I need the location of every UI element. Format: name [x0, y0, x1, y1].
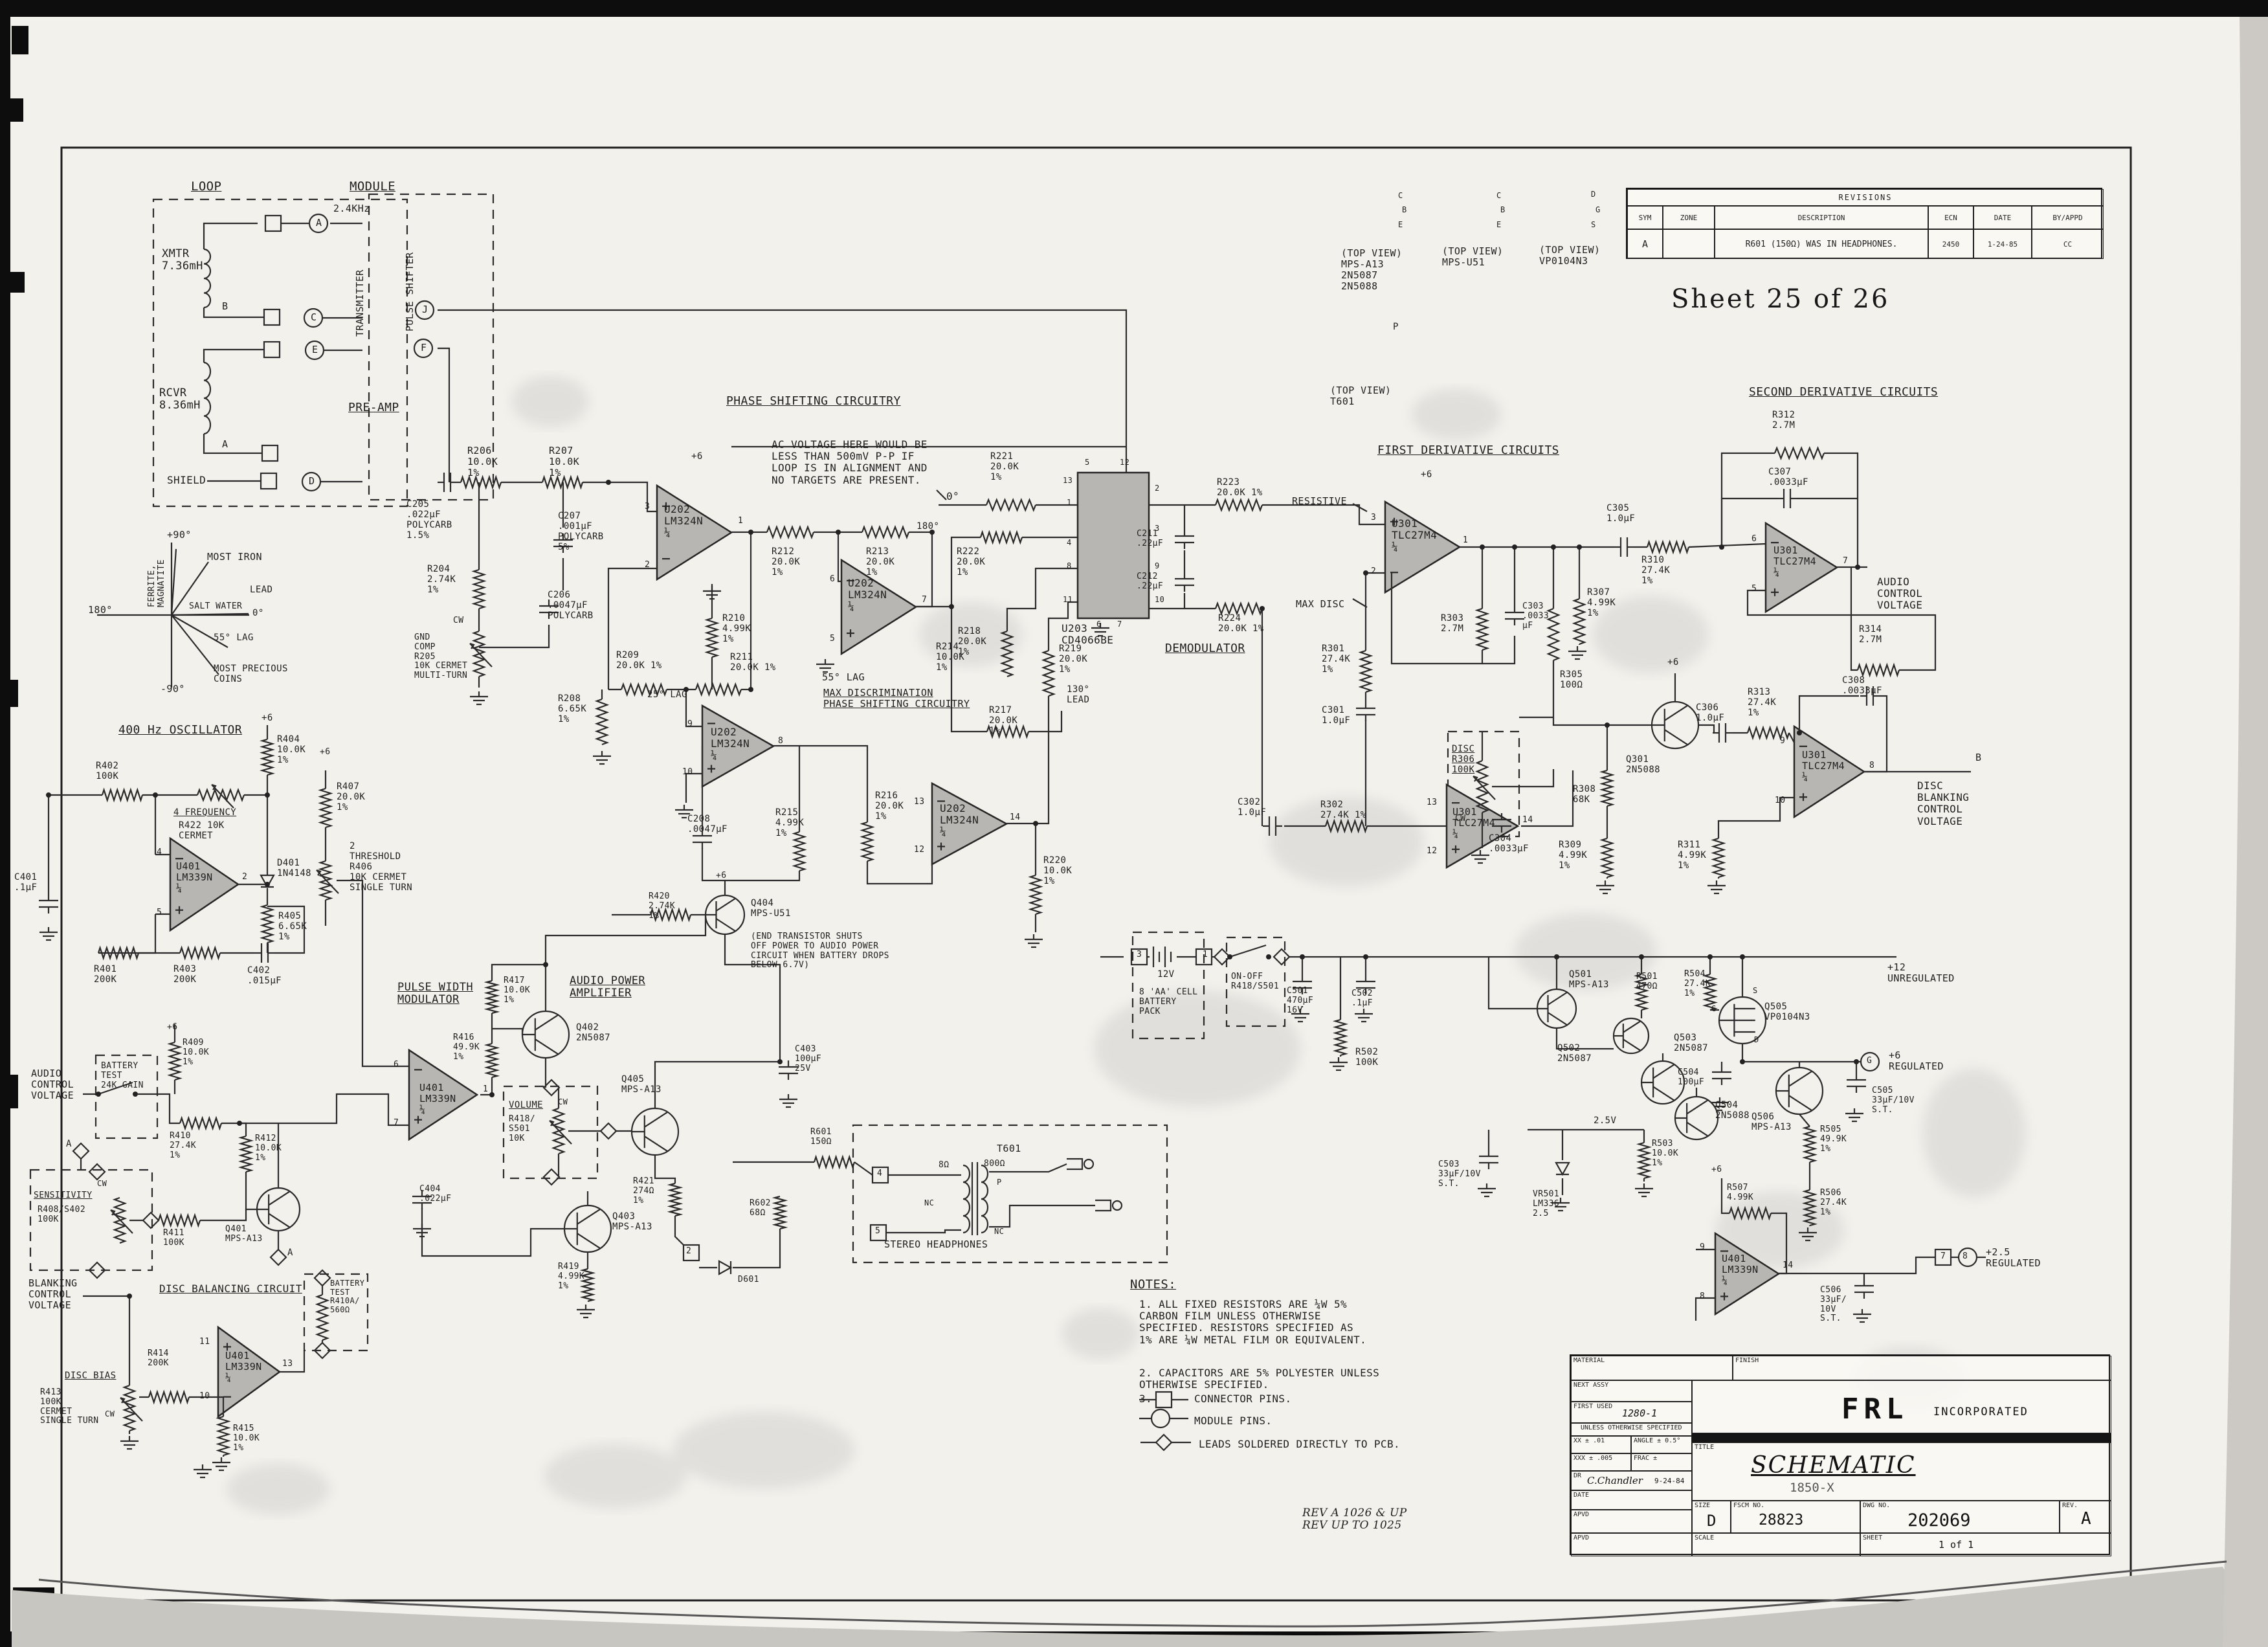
fscm-value: 28823: [1759, 1512, 1803, 1529]
rev-value: A: [2081, 1509, 2091, 1529]
first-used-value: 1280-1: [1622, 1407, 1657, 1419]
label-r310: R310 27.4K 1%: [1641, 555, 1670, 587]
label-r601: R601 150Ω: [810, 1128, 832, 1147]
label-c302: C302 1.0µF: [1238, 798, 1266, 818]
tol-xxx: XXX ± .005: [1573, 1455, 1612, 1462]
label-r221: R221 20.0K 1%: [990, 452, 1019, 483]
label-r502: R502 100K: [1355, 1048, 1378, 1068]
label-top-view: (TOP VIEW) VP0104N3: [1539, 245, 1600, 267]
label-u401: U401 LM339N ¼: [176, 861, 213, 894]
label-1: 1: [483, 1085, 488, 1095]
label-r308: R308 68K: [1573, 785, 1595, 805]
label-r219: R219 20.0K 1%: [1059, 644, 1087, 675]
label-12: 12: [914, 846, 924, 855]
rev-row-ecn: 2450: [1928, 229, 1973, 259]
label-7: 7: [1843, 557, 1848, 566]
label-r208: R208 6.65K 1%: [558, 694, 586, 725]
rev-row-zone: [1663, 229, 1715, 259]
label-r209: R209 20.0K 1%: [616, 651, 662, 671]
label-r505: R505 49.9K 1%: [1820, 1125, 1847, 1154]
label-r407: R407 20.0K 1%: [337, 782, 365, 813]
label-d601: D601: [738, 1275, 759, 1285]
label-r507: R507 4.99K: [1727, 1183, 1753, 1203]
label-1: 1: [1463, 536, 1468, 546]
label-r408-s402: R408/S402 100K: [38, 1205, 85, 1225]
material-label: MATERIAL: [1573, 1357, 1605, 1364]
label-r414: R414 200K: [148, 1349, 169, 1369]
apvd-label: APVD: [1573, 1511, 1589, 1518]
label-r416: R416 49.9K 1%: [453, 1033, 480, 1062]
label-cw: CW: [105, 1410, 115, 1419]
label-r210: R210 4.99K 1%: [722, 614, 751, 645]
label-14: 14: [1783, 1261, 1793, 1271]
label-r206: R206 10.0K 1%: [467, 445, 498, 478]
label-r419: R419 4.99K 1%: [558, 1262, 584, 1291]
label-c503: C503 33µF/10V S.T.: [1438, 1160, 1481, 1189]
label-b: B: [222, 301, 228, 312]
label-14: 14: [1010, 813, 1020, 823]
label-c: C: [311, 312, 317, 323]
label-10: 10: [682, 768, 693, 778]
label-rcvr: RCVR 8.36mH: [159, 387, 201, 412]
label-pulse-width: PULSE WIDTH MODULATOR: [397, 981, 473, 1007]
label-7: 7: [394, 1119, 399, 1128]
label-90: -90°: [161, 684, 185, 695]
label-g: G: [1711, 1005, 1717, 1014]
label-d401: D401 1N4148: [277, 858, 311, 879]
rev-row-by: CC: [2032, 229, 2104, 259]
label-volume: VOLUME: [509, 1101, 543, 1111]
label-8: 8: [778, 737, 783, 746]
rev-col-sym: SYM: [1627, 206, 1663, 229]
label-b: B: [1500, 206, 1506, 215]
title-block: MATERIAL FINISH NEXT ASSY FIRST USED 128…: [1570, 1354, 2110, 1555]
label-u301: U301 TLC27M4 ¼: [1773, 545, 1816, 578]
label-audio-power: AUDIO POWER AMPLIFIER: [570, 975, 645, 1000]
label-8: 8: [1869, 761, 1874, 771]
label-r417: R417 10.0K 1%: [504, 976, 530, 1005]
tolerance-header: UNLESS OTHERWISE SPECIFIED: [1581, 1424, 1682, 1431]
label-q504: Q504 2N5088: [1715, 1101, 1750, 1121]
label-r410: R410 27.4K 1%: [170, 1132, 196, 1160]
label-6: 6: [830, 575, 835, 585]
rev-label: REV.: [2062, 1502, 2078, 1509]
label-sensitivity: SENSITIVITY: [34, 1191, 93, 1201]
label-most-iron: MOST IRON: [207, 552, 262, 563]
label-lead: LEAD: [250, 585, 272, 596]
label-connector-pins: CONNECTOR PINS.: [1194, 1393, 1292, 1405]
drawn-label: DR: [1573, 1472, 1581, 1479]
label-r404: R404 10.0K 1%: [277, 735, 306, 766]
label-c502: C502 .1µF: [1351, 989, 1373, 1009]
label-55-lag: 55° LAG: [822, 672, 865, 683]
label-7: 7: [922, 596, 927, 605]
rev-row-sym: A: [1627, 229, 1663, 259]
label-first-derivative-circuits: FIRST DERIVATIVE CIRCUITS: [1377, 444, 1559, 458]
label-r223: R223 20.0K 1%: [1217, 478, 1263, 499]
label-r207: R207 10.0K 1%: [549, 445, 579, 478]
label-r420: R420 2.74K 1%: [649, 892, 675, 921]
label-g: G: [1867, 1057, 1872, 1066]
label-3: 3: [1137, 950, 1142, 960]
rev-col-ecn: ECN: [1928, 206, 1973, 229]
label-5: 5: [1085, 458, 1090, 467]
label-e: E: [312, 344, 318, 355]
label-5: 5: [157, 908, 162, 918]
label-3: 3: [1371, 513, 1376, 523]
label-10: 10: [199, 1392, 210, 1402]
label-6: 6: [394, 1060, 399, 1070]
label-nc: NC: [994, 1227, 1004, 1237]
label-6: +6: [1711, 1165, 1722, 1175]
rev-row-date: 1-24-85: [1973, 229, 2032, 259]
label-1: 1: [738, 517, 743, 526]
label-r215: R215 4.99K 1%: [775, 808, 804, 839]
label-r313: R313 27.4K 1%: [1748, 688, 1776, 719]
revision-table: REVISIONS SYM ZONE DESCRIPTION ECN DATE …: [1626, 188, 2102, 259]
label-8: 8: [1700, 1292, 1705, 1302]
label-r405: R405 6.65K 1%: [278, 912, 307, 943]
label-c: C: [1496, 192, 1502, 201]
rev-col-zone: ZONE: [1663, 206, 1715, 229]
label-f: F: [421, 342, 427, 353]
label-55-lag: 55° LAG: [214, 633, 254, 644]
label-25-lag: 25° LAG: [647, 690, 687, 700]
label-c501: C501 470µF 16V: [1287, 987, 1313, 1015]
label-2: 2 THRESHOLD R406 10K CERMET SINGLE TURN: [350, 842, 412, 893]
label-notes: NOTES:: [1130, 1278, 1176, 1292]
label-c505: C505 33µF/10V S.T.: [1872, 1086, 1915, 1115]
sheet-cell-label: SHEET: [1863, 1534, 1882, 1541]
label-u401: U401 LM339N ¼: [225, 1350, 262, 1384]
label-disc: DISC R306 100K: [1452, 745, 1474, 776]
label-12v: 12V: [1157, 970, 1175, 980]
label-r211: R211 20.0K 1%: [730, 653, 776, 673]
tol-xx: XX ± .01: [1573, 1437, 1605, 1444]
rev-col-date: DATE: [1973, 206, 2032, 229]
label-top-view: (TOP VIEW) MPS-U51: [1442, 246, 1503, 268]
label-q405: Q405 MPS-A13: [621, 1075, 661, 1095]
label-a: A: [222, 439, 228, 450]
label-audio: AUDIO CONTROL VOLTAGE: [1877, 576, 1922, 612]
label-d: D: [1754, 1036, 1759, 1045]
rev-col-description: DESCRIPTION: [1715, 206, 1928, 229]
label-pulse-shifter: PULSE SHIFTER: [405, 252, 416, 331]
label-second-derivative-circuits: SECOND DERIVATIVE CIRCUITS: [1749, 386, 1938, 399]
rev-row-description: R601 (150Ω) WAS IN HEADPHONES.: [1715, 229, 1928, 259]
label-9: 9: [1700, 1243, 1705, 1253]
drawn-value: C.Chandler: [1587, 1475, 1643, 1486]
label-3: 3: [645, 502, 650, 512]
label-5: 5: [830, 634, 835, 644]
label-disc-bias: DISC BIAS: [65, 1371, 116, 1382]
label-8: 8Ω: [939, 1161, 949, 1171]
label-max-discrimination: MAX DISCRIMINATION PHASE SHIFTING CIRCUI…: [823, 688, 970, 710]
label-11: 11: [1063, 596, 1073, 605]
label-r213: R213 20.0K 1%: [866, 547, 895, 578]
label-s: S: [1753, 987, 1758, 996]
label-u401: U401 LM339N ¼: [419, 1082, 456, 1115]
label-disc: DISC BLANKING CONTROL VOLTAGE: [1917, 780, 1969, 827]
label-1: 1: [1067, 499, 1072, 508]
label-blanking: BLANKING CONTROL VOLTAGE: [28, 1278, 77, 1311]
title-block-divider: [1692, 1433, 2111, 1442]
subtitle: 1850-X: [1790, 1481, 1834, 1495]
label-r402: R402 100K: [96, 761, 118, 782]
label-r501: R501 470Ω: [1636, 972, 1658, 992]
label-13: 13: [914, 798, 924, 807]
label-r421: R421 274Ω 1%: [633, 1177, 654, 1205]
label-d: D: [309, 476, 315, 487]
label-most-precious: MOST PRECIOUS COINS: [214, 664, 288, 685]
label-6: +6: [320, 748, 330, 757]
label-phase-shifting-circuitry: PHASE SHIFTING CIRCUITRY: [726, 395, 901, 409]
label-c301: C301 1.0µF: [1322, 706, 1350, 726]
label-c205: C205 .022µF POLYCARB 1.5%: [406, 500, 452, 541]
label-r302: R302 27.4K 1%: [1320, 800, 1366, 821]
label-2-5v: 2.5V: [1594, 1116, 1616, 1126]
label-b: B: [1975, 752, 1981, 763]
label-ferrite: FERRITE, MAGNATITE: [148, 559, 167, 607]
label-5: 5: [1751, 585, 1757, 594]
label-6: +6: [716, 871, 726, 881]
size-value: D: [1707, 1512, 1716, 1530]
label-5: 5: [875, 1227, 880, 1237]
label-6: 6: [1751, 535, 1757, 544]
label-q401: Q401 MPS-A13: [225, 1225, 263, 1244]
label-800: 800Ω: [984, 1160, 1005, 1169]
label-r224: R224 20.0K 1%: [1218, 614, 1264, 634]
label-u202: U202 LM324N ¼: [940, 803, 979, 838]
label-q404: Q404 MPS-U51: [751, 899, 791, 919]
label-g: G: [1595, 206, 1601, 215]
label-r212: R212 20.0K 1%: [772, 547, 800, 578]
label-r401: R401 200K: [94, 965, 117, 985]
dwg-value: 202069: [1907, 1510, 1971, 1530]
next-assy-label: NEXT ASSY: [1573, 1382, 1608, 1389]
label-6: +6: [691, 452, 703, 462]
label-r222: R222 20.0K 1%: [957, 547, 985, 578]
label-xmtr: XMTR 7.36mH: [162, 248, 203, 273]
label-on-off: ON-OFF R418/S501: [1231, 972, 1279, 992]
label-1-all-fixed-resistors-are-w-5: 1. ALL FIXED RESISTORS ARE ¼W 5% CARBON …: [1139, 1299, 1366, 1346]
label-j: J: [422, 304, 428, 315]
label-e: E: [1398, 221, 1403, 230]
label-6: +6 REGULATED: [1889, 1050, 1944, 1072]
label-battery: BATTERY TEST 24K GAIN: [101, 1062, 144, 1090]
label-12: +12 UNREGULATED: [1887, 962, 1955, 984]
label-r305: R305 100Ω: [1560, 670, 1583, 691]
tol-angle: ANGLE ± 0.5°: [1634, 1437, 1680, 1444]
label-0: 0°: [252, 609, 264, 619]
label-e: E: [1496, 221, 1502, 230]
label-9: 9: [687, 720, 693, 730]
title-label: TITLE: [1695, 1444, 1714, 1451]
label-leads-soldered-directly-to-pcb: LEADS SOLDERED DIRECTLY TO PCB.: [1199, 1439, 1400, 1450]
label-r309: R309 4.99K 1%: [1559, 840, 1587, 871]
label-nc: NC: [924, 1199, 934, 1208]
label-13: 13: [1063, 476, 1073, 486]
label-r311: R311 4.99K 1%: [1678, 840, 1706, 871]
label-180: 180°: [917, 522, 939, 532]
label-resistive: RESISTIVE: [1292, 496, 1347, 507]
label-r301: R301 27.4K 1%: [1322, 644, 1350, 675]
label-u301: U301 TLC27M4 ¼: [1802, 750, 1845, 783]
label-q301: Q301 2N5088: [1626, 755, 1660, 776]
label-demodulator: DEMODULATOR: [1165, 642, 1245, 656]
label-r216: R216 20.0K 1%: [875, 791, 904, 822]
drawn-date: 9-24-84: [1654, 1477, 1684, 1485]
label-u401: U401 LM339N ¼: [1722, 1253, 1759, 1286]
label-2: 2: [645, 561, 650, 570]
label-c504: C504 100µF: [1678, 1068, 1704, 1088]
label-stereo-headphones: STEREO HEADPHONES: [884, 1239, 988, 1250]
label-c207: C207 .001µF POLYCARB 5%: [558, 511, 604, 553]
label-r220: R220 10.0K 1%: [1043, 856, 1072, 887]
label-0: 0°: [946, 491, 959, 502]
label-1: 1: [1203, 950, 1208, 960]
label-400-hz-oscillator: 400 Hz OSCILLATOR: [118, 724, 242, 737]
date-label: DATE: [1573, 1492, 1589, 1499]
label-11: 11: [199, 1338, 210, 1347]
label-transmitter: TRANSMITTER: [355, 269, 366, 337]
label-max-disc: MAX DISC: [1296, 599, 1344, 610]
label-q402: Q402 2N5087: [576, 1023, 610, 1044]
label-top-view: (TOP VIEW) MPS-A13 2N5087 2N5088: [1341, 248, 1402, 292]
apvd2-label: APVD: [1573, 1534, 1589, 1541]
label-r303: R303 2.7M: [1441, 614, 1463, 634]
label-cw: CW: [558, 1098, 568, 1107]
label-ac-voltage-here-would-be: AC VOLTAGE HERE WOULD BE LESS THAN 500mV…: [772, 439, 928, 486]
label-8: 8: [1962, 1252, 1968, 1262]
label-r314: R314 2.7M: [1859, 625, 1882, 645]
label-cw: CW: [97, 1180, 107, 1189]
label-9: 9: [1780, 737, 1785, 746]
label-q501: Q501 MPS-A13: [1569, 970, 1609, 991]
scale-label: SCALE: [1695, 1534, 1714, 1541]
label-a: A: [66, 1139, 72, 1150]
label-2-capacitors-are-5-polyester-unless: 2. CAPACITORS ARE 5% POLYESTER UNLESS OT…: [1139, 1367, 1379, 1391]
label-c303: C303 .0033 µF: [1522, 602, 1549, 631]
label-180: 180°: [88, 605, 113, 616]
label-6: 6: [1096, 620, 1102, 629]
label-r422-10k: R422 10K CERMET: [179, 821, 225, 842]
label-r504: R504 27.4K 1%: [1684, 970, 1711, 998]
label-c404: C404 .022µF: [419, 1185, 451, 1204]
scanned-schematic-page: LOOPMODULEXMTR 7.36mHRCVR 8.36mH2.4KHzSH…: [0, 0, 2268, 1647]
label-r403: R403 200K: [173, 965, 196, 985]
label-c306: C306 1.0µF: [1696, 703, 1724, 724]
label-c403: C403 100µF 25V: [795, 1045, 821, 1073]
label-90: +90°: [167, 530, 192, 541]
label-vr501: VR501 LM336 2.5: [1533, 1190, 1559, 1218]
label-c206: C206 .0047µF POLYCARB: [548, 590, 594, 622]
size-label: SIZE: [1695, 1502, 1710, 1509]
label-3: 3: [1155, 524, 1160, 533]
label-8-aa-cell: 8 'AA' CELL BATTERY PACK: [1139, 988, 1198, 1016]
label-u301: U301 TLC27M4 ¼: [1392, 518, 1437, 554]
rev-col-by: BY/APPD: [2032, 206, 2104, 229]
label-7: 7: [1940, 1252, 1946, 1262]
first-used-label: FIRST USED: [1573, 1403, 1612, 1410]
label-c402: C402 .015µF: [247, 966, 282, 987]
label-4: 4: [877, 1169, 882, 1179]
label-r204: R204 2.74K 1%: [427, 565, 456, 596]
company-logo: FRL: [1841, 1393, 1908, 1426]
label-q403: Q403 MPS-A13: [612, 1212, 652, 1233]
label-2: 2: [1155, 484, 1160, 493]
label-gnd: GND COMP R205 10K CERMET MULTI-TURN: [414, 633, 467, 681]
label-p: P: [1393, 322, 1399, 333]
label-q506: Q506 MPS-A13: [1751, 1112, 1792, 1133]
label-q503: Q503 2N5087: [1674, 1033, 1708, 1054]
label-r506: R506 27.4K 1%: [1820, 1189, 1847, 1217]
label-c307: C307 .0033µF: [1768, 467, 1808, 488]
label-u202: U202 LM324N ¼: [848, 577, 887, 613]
label-2-5: +2.5 REGULATED: [1986, 1247, 2041, 1269]
label-2: 2: [242, 873, 247, 882]
label-10: 10: [1155, 596, 1164, 605]
label-top-view: (TOP VIEW) T601: [1330, 385, 1391, 407]
label-9: 9: [1155, 562, 1160, 571]
revision-table-title: REVISIONS: [1627, 189, 2104, 206]
label-audio: AUDIO CONTROL VOLTAGE: [31, 1068, 74, 1101]
label-r413: R413 100K CERMET SINGLE TURN: [40, 1388, 99, 1426]
label-6: +6: [1667, 658, 1679, 668]
label-u301: U301 TLC27M4 ¼: [1452, 807, 1495, 840]
label-130: 130° LEAD: [1067, 685, 1089, 706]
label-2-4khz: 2.4KHz: [333, 203, 370, 214]
sheet-number: Sheet 25 of 26: [1671, 285, 1889, 315]
dwg-label: DWG NO.: [1863, 1502, 1890, 1509]
label-r415: R415 10.0K 1%: [233, 1424, 260, 1453]
label-rev-a-1026-up: REV A 1026 & UP REV UP TO 1025: [1302, 1507, 1407, 1532]
label-s: S: [1591, 221, 1596, 230]
label-4-frequency: 4 FREQUENCY: [173, 808, 236, 818]
label-q505: Q505 VP0104N3: [1764, 1002, 1810, 1023]
label-12: 12: [1427, 847, 1437, 857]
label-13: 13: [282, 1360, 293, 1369]
tol-frac: FRAC ±: [1634, 1455, 1657, 1462]
finish-label: FINISH: [1735, 1357, 1759, 1364]
label-4: 4: [157, 848, 162, 858]
label-r503: R503 10.0K 1%: [1652, 1139, 1678, 1168]
label-6: +6: [1421, 470, 1432, 480]
label-battery: BATTERY TEST R410A/ 560Ω: [330, 1279, 364, 1315]
label-u202: U202 LM324N ¼: [711, 726, 750, 762]
label-a: A: [316, 218, 322, 229]
label-8: 8: [1067, 562, 1072, 571]
label-r412: R412 10.0K 1%: [255, 1134, 282, 1163]
label-6: +6: [167, 1023, 177, 1033]
label-c401: C401 .1µF: [14, 873, 37, 893]
label-t601: T601: [997, 1143, 1021, 1154]
label-2: 2: [686, 1247, 691, 1257]
label-6: +6: [261, 713, 273, 724]
label-c506: C506 33µF/ 10V S.T.: [1820, 1286, 1847, 1324]
label-12: 12: [1120, 458, 1129, 467]
label-13: 13: [1427, 798, 1437, 808]
label-cw: CW: [453, 616, 463, 626]
label-module-pins: MODULE PINS.: [1194, 1415, 1272, 1427]
label-module: MODULE: [350, 180, 395, 194]
label-c305: C305 1.0µF: [1606, 504, 1635, 524]
label-end-transistor-shuts: (END TRANSISTOR SHUTS OFF POWER TO AUDIO…: [751, 932, 889, 970]
label-r409: R409 10.0K 1%: [183, 1038, 209, 1067]
label-disc-balancing-circuit: DISC BALANCING CIRCUIT: [159, 1283, 302, 1295]
label-p: P: [997, 1178, 1002, 1187]
label-10: 10: [1775, 796, 1785, 806]
